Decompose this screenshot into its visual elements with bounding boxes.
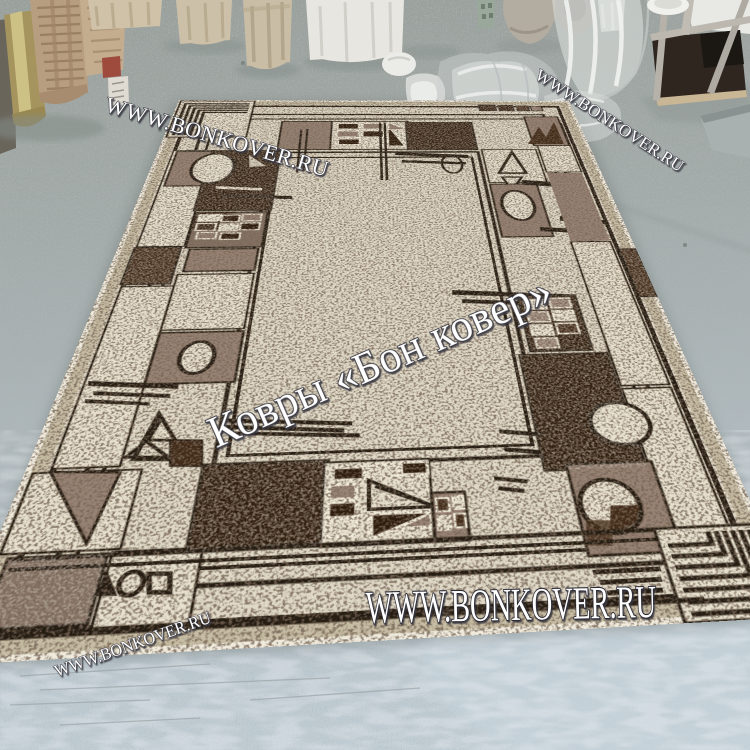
svg-text:WWW.BONKOVER.RU: WWW.BONKOVER.RU [103,92,332,182]
svg-text:WWW.BONKOVER.RU: WWW.BONKOVER.RU [365,577,656,634]
svg-text:WWW.BONKOVER.RU: WWW.BONKOVER.RU [532,65,688,175]
svg-text:WWW.BONKOVER.RU: WWW.BONKOVER.RU [52,608,214,681]
svg-text:Ковры «Бон ковер»: Ковры «Бон ковер» [200,265,559,457]
